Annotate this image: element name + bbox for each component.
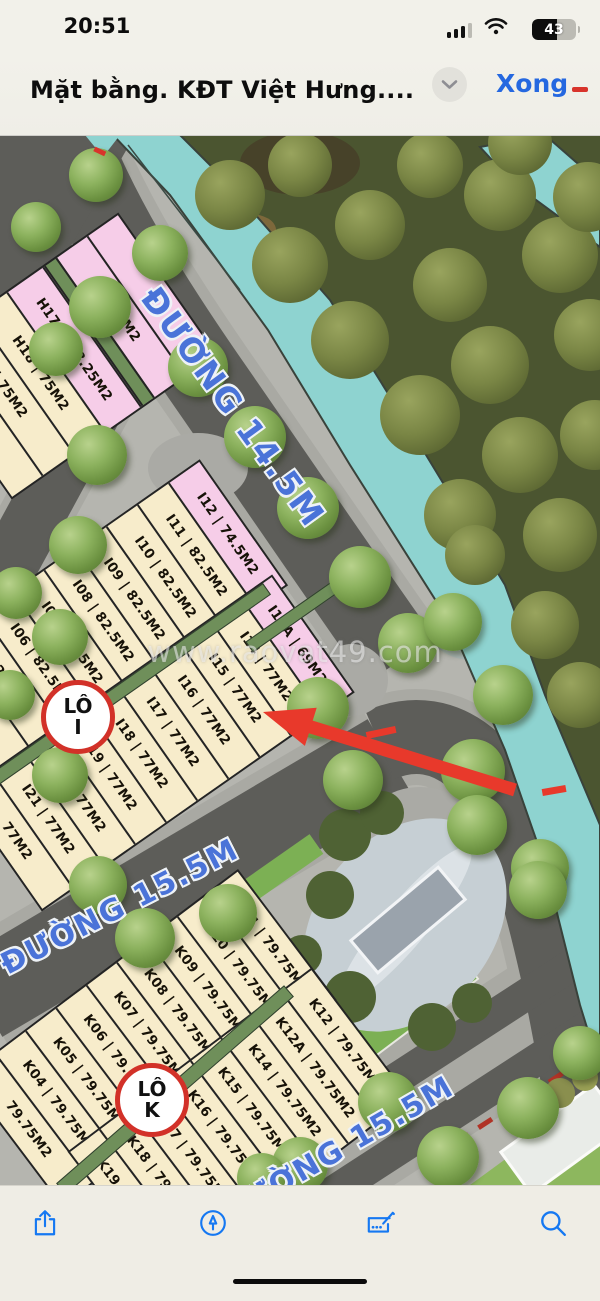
tree: [11, 202, 61, 252]
phone-screen: 20:51 43 Mặt bằng. KĐT Việt Hưng.... Xon…: [0, 0, 600, 1301]
tree: [509, 861, 567, 919]
tree: [132, 225, 188, 281]
fill-sign-button[interactable]: [358, 1201, 402, 1245]
tree: [311, 301, 389, 379]
document-title: Mặt bằng. KĐT Việt Hưng....: [30, 76, 414, 104]
search-icon: [538, 1208, 568, 1238]
share-icon: [30, 1208, 60, 1238]
tree: [329, 546, 391, 608]
tree: [417, 1126, 479, 1185]
tree: [511, 591, 579, 659]
tree: [335, 190, 405, 260]
chevron-down-icon: [441, 79, 458, 90]
tree: [32, 747, 88, 803]
tree: [199, 884, 257, 942]
tree: [69, 276, 131, 338]
nav-bar: Mặt bằng. KĐT Việt Hưng.... Xong: [0, 54, 600, 136]
tree: [268, 135, 332, 197]
home-indicator[interactable]: [233, 1279, 367, 1284]
tree: [482, 417, 558, 493]
tree: [380, 375, 460, 455]
tree: [441, 739, 505, 803]
badge-lo-i: LÔ I: [41, 680, 115, 754]
cellular-signal-icon: [447, 22, 473, 38]
tree: [553, 1026, 600, 1080]
tree: [413, 248, 487, 322]
tree: [523, 498, 597, 572]
done-button[interactable]: Xong: [496, 69, 568, 98]
tree: [445, 525, 505, 585]
tree: [29, 322, 83, 376]
wifi-icon: [484, 18, 508, 35]
markup-button[interactable]: [191, 1201, 235, 1245]
map-document[interactable]: 8.25M2 H17 | 108.25M2 H18 | 75M2 | 75M2 …: [0, 135, 600, 1185]
status-bar: 20:51 43: [0, 0, 600, 54]
watermark: www.raovat49.com: [147, 635, 443, 669]
tree: [49, 516, 107, 574]
badge-line: LÔ: [137, 1079, 166, 1100]
fill-sign-icon: [364, 1208, 396, 1238]
share-button[interactable]: [23, 1201, 67, 1245]
battery-icon: 43: [532, 19, 576, 40]
battery-nub: [578, 26, 581, 33]
tree: [497, 1077, 559, 1139]
tree: [252, 227, 328, 303]
tree: [323, 750, 383, 810]
tree: [195, 160, 265, 230]
tree: [473, 665, 533, 725]
tree: [451, 326, 529, 404]
clock: 20:51: [42, 14, 152, 38]
title-menu-button[interactable]: [432, 67, 467, 102]
badge-line: LÔ: [63, 696, 92, 717]
search-button[interactable]: [531, 1201, 575, 1245]
tree: [287, 677, 349, 739]
tree: [69, 148, 123, 202]
tree: [67, 425, 127, 485]
markup-pen-icon: [198, 1208, 228, 1238]
tree: [447, 795, 507, 855]
red-annotation-dash: [572, 87, 588, 92]
badge-line: K: [144, 1100, 160, 1121]
battery-percent: 43: [532, 19, 576, 40]
tree: [32, 609, 88, 665]
badge-lo-k: LÔ K: [115, 1063, 189, 1137]
badge-line: I: [74, 717, 81, 738]
tree: [397, 135, 463, 198]
